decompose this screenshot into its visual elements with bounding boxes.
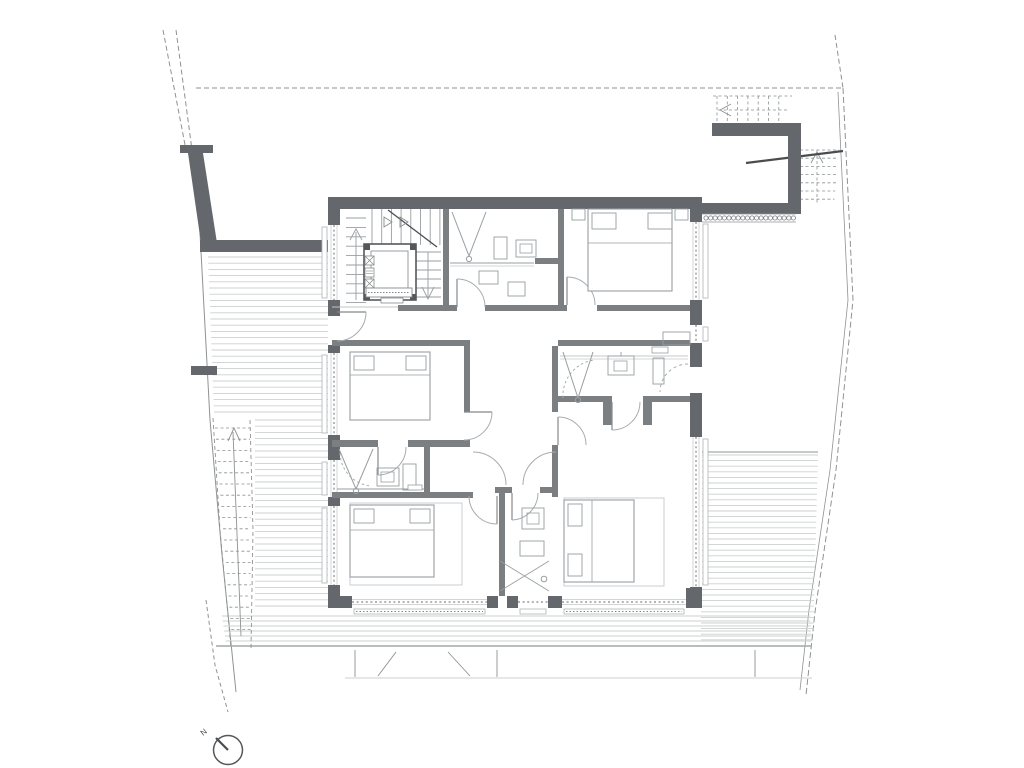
interior-partitions-el-9 (332, 440, 378, 447)
deck-west-lower (255, 420, 328, 606)
doors-el-1 (457, 279, 485, 307)
doors-el-10 (473, 452, 506, 485)
exterior-walls-el-4 (328, 435, 340, 460)
washbasin (516, 240, 536, 257)
interior-partitions-el-17 (603, 396, 612, 425)
doors-el-5 (337, 312, 366, 341)
bathroom-fixtures-el-24 (614, 361, 627, 371)
interior-partitions-el-5 (597, 305, 690, 311)
cabinet (494, 237, 507, 259)
terrace-decking (208, 257, 818, 678)
interior-partitions-el-8 (464, 346, 470, 412)
exterior-stair-west-el-1 (250, 420, 253, 648)
windows-el-46 (564, 609, 684, 614)
exterior-walls-el-5 (328, 497, 340, 506)
treads (215, 428, 251, 630)
site-boundary-el-4 (206, 600, 228, 712)
compass-north-label: N (199, 727, 209, 738)
northeast-wall-side (788, 123, 801, 206)
doors-el-7 (378, 447, 406, 475)
interior-partitions-el-22 (499, 493, 505, 596)
site-boundary-el-7 (835, 35, 843, 88)
west-slant-wall (188, 153, 217, 243)
windows-el-1 (322, 227, 327, 298)
exterior-walls-el-8 (690, 300, 702, 325)
interior-partitions-el-6 (332, 340, 470, 346)
doors-el-20 (512, 493, 538, 520)
doors-el-15 (612, 402, 640, 430)
exterior-walls-el-16 (686, 588, 702, 608)
retaining-walls-el-0 (180, 145, 213, 153)
treads-east (416, 252, 441, 297)
windows-el-43 (520, 609, 546, 614)
property-line-east (806, 88, 853, 695)
interior-partitions-el-16 (558, 396, 608, 402)
exterior-walls-el-3 (328, 345, 340, 353)
bathroom-fixtures-el-17 (408, 485, 422, 490)
interior-partitions-el-0 (443, 209, 449, 305)
exterior-walls-el-15 (548, 596, 562, 608)
retaining-walls-el-6 (700, 203, 801, 214)
doors-el-9 (464, 412, 492, 440)
deck-west-upper (208, 257, 328, 412)
windows-el-16 (328, 506, 340, 585)
interior-partitions-el-2 (535, 258, 558, 264)
exterior-walls-el-10 (690, 393, 702, 437)
exterior-stair-west (213, 418, 253, 648)
interior-partitions-el-14 (552, 346, 558, 412)
interior-partitions-el-3 (398, 305, 457, 311)
interior-partitions-el-11 (424, 447, 430, 492)
windows-el-17 (322, 508, 327, 583)
plan-layers (163, 30, 853, 765)
exterior-walls-el-7 (690, 209, 702, 222)
washbasin (522, 508, 544, 529)
washbasin (377, 468, 399, 486)
bed-2 (350, 352, 430, 420)
drain (466, 256, 471, 261)
windows-el-41 (498, 596, 507, 608)
interior-partitions-el-4 (485, 305, 567, 311)
retaining-walls-el-2 (200, 240, 328, 252)
doors-el-18 (469, 496, 497, 524)
windows-el-7 (322, 355, 327, 433)
north-wall (328, 197, 702, 209)
interior-partitions-el-1 (558, 209, 564, 305)
floor-plan-page: N (0, 0, 1024, 768)
nightstand (572, 209, 585, 220)
nightstand (675, 209, 688, 220)
windows-el-22 (703, 224, 708, 298)
bathroom-fixtures-el-9 (508, 282, 525, 296)
exterior-stair-northeast (713, 96, 843, 204)
site-boundary-el-2 (176, 30, 192, 150)
exterior-walls-el-12 (328, 596, 352, 608)
bathroom-fixtures-el-1 (469, 212, 486, 256)
elevator-el-2 (410, 244, 416, 250)
shower-v (339, 449, 356, 489)
interior-partitions-el-21 (540, 487, 556, 493)
exterior-walls-el-14 (507, 596, 518, 608)
elevator-el-9 (365, 268, 374, 277)
retaining-walls-el-3 (191, 366, 217, 375)
exterior-walls-el-13 (487, 596, 498, 608)
exterior-walls-el-2 (328, 300, 340, 316)
shower-curtain (340, 453, 371, 486)
floor-plan-drawing: N (0, 0, 1024, 768)
interior-partitions-el-13 (430, 492, 473, 498)
northeast-wall-top (712, 123, 801, 136)
north-compass (214, 736, 243, 765)
terrace-decking-el-10 (378, 652, 396, 676)
elevator-el-1 (364, 244, 370, 250)
insulation-hatch (704, 216, 796, 220)
interior-partitions-el-19 (648, 396, 690, 402)
exterior-walls-el-1 (328, 209, 340, 225)
treads-north (372, 209, 440, 245)
elevator-el-17 (381, 298, 403, 303)
east-door-gap (690, 367, 702, 393)
site-boundary-el-1 (163, 30, 186, 150)
bathroom-fixtures-el-11 (356, 449, 373, 489)
shower-v (452, 212, 469, 256)
doors-el-13 (558, 417, 586, 445)
bed-1 (588, 209, 672, 291)
terrace-decking-el-11 (448, 652, 470, 676)
bed-4 (564, 500, 634, 582)
interior-stair-el-8 (384, 217, 392, 227)
break-line (388, 210, 437, 247)
doors-el-11 (523, 452, 556, 485)
compass-needle (216, 738, 228, 750)
interior-partitions-el-12 (332, 492, 430, 498)
bed-3 (350, 505, 434, 577)
bathroom-fixtures-el-29 (527, 513, 539, 524)
windows-el-27 (703, 327, 708, 341)
exterior-walls-el-9 (690, 343, 702, 367)
toilet (520, 541, 544, 556)
drain (541, 576, 547, 582)
interior-partitions-el-20 (495, 487, 512, 493)
elevator (364, 244, 416, 303)
deck-east (701, 455, 818, 640)
bathroom-fixtures-el-27 (652, 347, 668, 353)
toilet (479, 271, 498, 284)
interior-partitions-el-10 (408, 440, 470, 447)
bathroom-fixtures-el-6 (520, 244, 532, 253)
exterior-stair-west-el-3 (233, 432, 241, 636)
windows-el-12 (322, 462, 327, 495)
windows-el-31 (703, 439, 708, 585)
